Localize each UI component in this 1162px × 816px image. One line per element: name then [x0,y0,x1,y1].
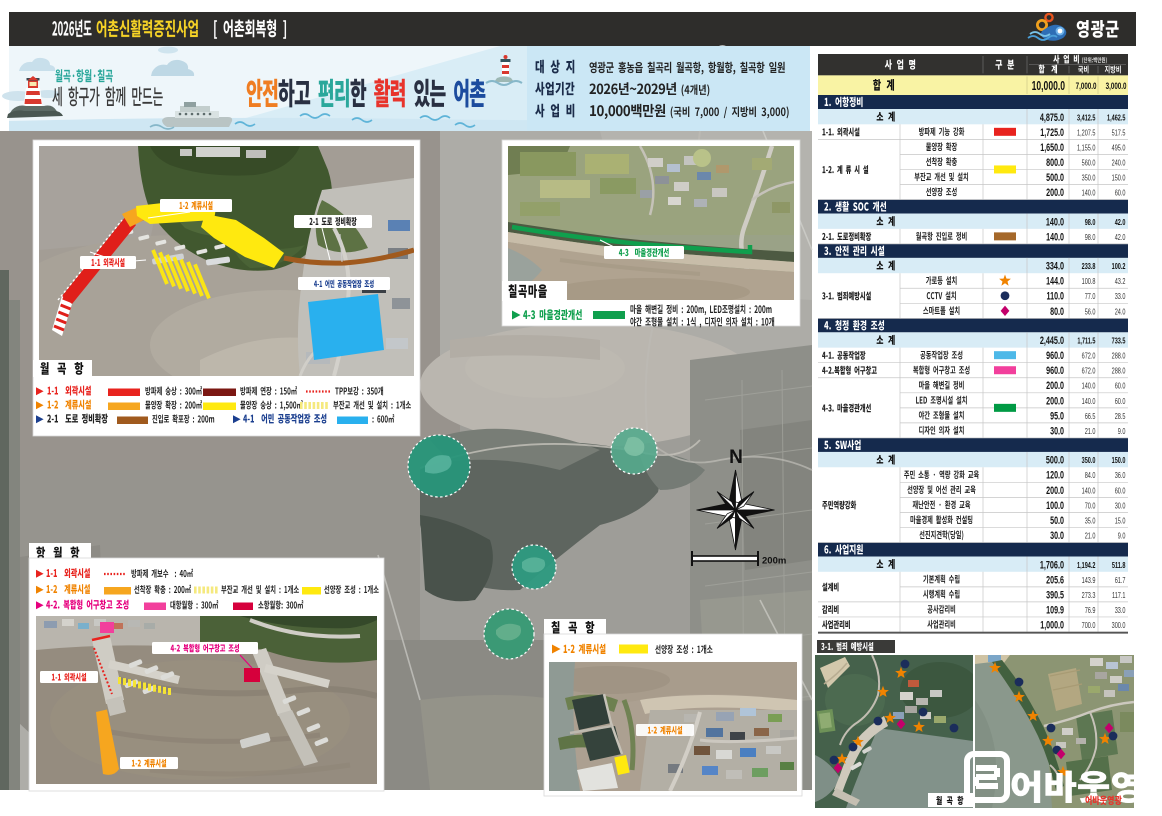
svg-text:33.0: 33.0 [1115,292,1126,301]
svg-text:10,000.0: 10,000.0 [1032,79,1065,93]
svg-text:1,650.0: 1,650.0 [1040,141,1064,153]
svg-text:1,207.5: 1,207.5 [1077,128,1096,137]
svg-text:200.0: 200.0 [1046,187,1064,199]
svg-text:100.8: 100.8 [1082,277,1096,286]
svg-text:60.0: 60.0 [1115,188,1126,197]
svg-text:100.0: 100.0 [1046,499,1064,511]
svg-text:110.0: 110.0 [1047,290,1064,302]
svg-text:960.0: 960.0 [1046,365,1064,377]
svg-text:273.3: 273.3 [1082,591,1096,600]
svg-text:70.0: 70.0 [1085,501,1096,510]
svg-text:3,000.0: 3,000.0 [1106,81,1127,92]
svg-text:144.0: 144.0 [1046,275,1064,287]
svg-text:43.2: 43.2 [1115,277,1126,286]
svg-text:56.0: 56.0 [1085,307,1096,316]
svg-text:200.0: 200.0 [1046,395,1064,407]
svg-text:1,462.5: 1,462.5 [1107,113,1126,122]
svg-text:9.0: 9.0 [1118,531,1126,540]
svg-text:800.0: 800.0 [1046,156,1064,168]
svg-text:390.5: 390.5 [1046,589,1064,601]
svg-text:50.0: 50.0 [1050,514,1064,526]
svg-text:42.0: 42.0 [1115,233,1126,242]
svg-text:140.0: 140.0 [1046,231,1064,243]
svg-text:N: N [729,447,743,468]
svg-text:205.6: 205.6 [1046,574,1064,586]
svg-text:117.1: 117.1 [1112,591,1125,600]
svg-text:30.0: 30.0 [1115,501,1126,510]
svg-text:150.0: 150.0 [1112,173,1126,182]
svg-text:140.0: 140.0 [1082,188,1096,197]
svg-text:334.0: 334.0 [1046,260,1064,272]
svg-text:60.0: 60.0 [1115,382,1126,391]
svg-text:109.9: 109.9 [1046,604,1064,616]
svg-text:233.8: 233.8 [1082,262,1096,271]
svg-text:140.0: 140.0 [1082,382,1096,391]
svg-text:672.0: 672.0 [1082,367,1096,376]
svg-text:1,711.5: 1,711.5 [1077,337,1095,346]
svg-text:15.0: 15.0 [1115,516,1126,525]
svg-text:1,725.0: 1,725.0 [1040,126,1064,138]
svg-text:4,875.0: 4,875.0 [1040,111,1064,123]
svg-text:9.0: 9.0 [1118,427,1126,436]
svg-text:120.0: 120.0 [1046,469,1064,481]
svg-text:960.0: 960.0 [1046,350,1064,362]
svg-text:350.0: 350.0 [1082,456,1096,465]
svg-text:1,706.0: 1,706.0 [1040,559,1064,571]
svg-text:560.0: 560.0 [1082,158,1096,167]
svg-text:140.0: 140.0 [1046,216,1064,228]
svg-text:80.0: 80.0 [1050,305,1064,317]
svg-text:35.0: 35.0 [1085,516,1096,525]
svg-text:240.0: 240.0 [1112,158,1126,167]
svg-text:60.0: 60.0 [1115,486,1126,495]
svg-text:84.0: 84.0 [1085,471,1096,480]
svg-text:42.0: 42.0 [1115,218,1126,227]
svg-text:150.0: 150.0 [1112,456,1126,465]
svg-text:36.0: 36.0 [1115,471,1126,480]
svg-text:24.0: 24.0 [1115,307,1126,316]
svg-text:140.0: 140.0 [1082,397,1096,406]
svg-text:700.0: 700.0 [1082,621,1096,630]
svg-text:95.0: 95.0 [1050,410,1064,422]
svg-text:28.5: 28.5 [1115,412,1126,421]
svg-text:288.0: 288.0 [1112,367,1126,376]
svg-text:61.7: 61.7 [1115,576,1126,585]
svg-text:517.5: 517.5 [1112,128,1126,137]
svg-text:76.9: 76.9 [1085,606,1096,615]
svg-text:7,000.0: 7,000.0 [1076,81,1097,92]
svg-text:143.9: 143.9 [1082,576,1096,585]
svg-text:21.0: 21.0 [1085,531,1096,540]
svg-text:672.0: 672.0 [1082,352,1096,361]
svg-text:140.0: 140.0 [1082,486,1096,495]
svg-text:30.0: 30.0 [1050,425,1064,437]
svg-text:1,000.0: 1,000.0 [1040,619,1064,631]
svg-text:100.2: 100.2 [1112,262,1126,271]
svg-text:200.0: 200.0 [1046,380,1064,392]
svg-text:200m: 200m [762,556,786,567]
svg-text:60.0: 60.0 [1115,397,1126,406]
svg-text:33.0: 33.0 [1115,606,1126,615]
svg-text:733.5: 733.5 [1112,337,1126,346]
svg-text:495.0: 495.0 [1112,143,1126,152]
svg-text:66.5: 66.5 [1085,412,1096,421]
svg-text:98.0: 98.0 [1085,233,1096,242]
svg-text:288.0: 288.0 [1112,352,1126,361]
svg-text:200.0: 200.0 [1046,484,1064,496]
svg-text:2,445.0: 2,445.0 [1040,335,1064,347]
svg-text:1,194.2: 1,194.2 [1077,561,1096,570]
svg-text:21.0: 21.0 [1085,427,1096,436]
svg-text:1,155.0: 1,155.0 [1077,143,1096,152]
svg-text:98.0: 98.0 [1085,218,1096,227]
svg-text:511.8: 511.8 [1112,561,1126,570]
svg-text:3,412.5: 3,412.5 [1077,113,1096,122]
svg-text:300.0: 300.0 [1112,621,1126,630]
svg-text:77.0: 77.0 [1085,292,1096,301]
svg-text:500.0: 500.0 [1046,172,1064,184]
svg-text:500.0: 500.0 [1046,454,1064,466]
svg-text:30.0: 30.0 [1050,530,1064,542]
svg-text:350.0: 350.0 [1082,173,1096,182]
